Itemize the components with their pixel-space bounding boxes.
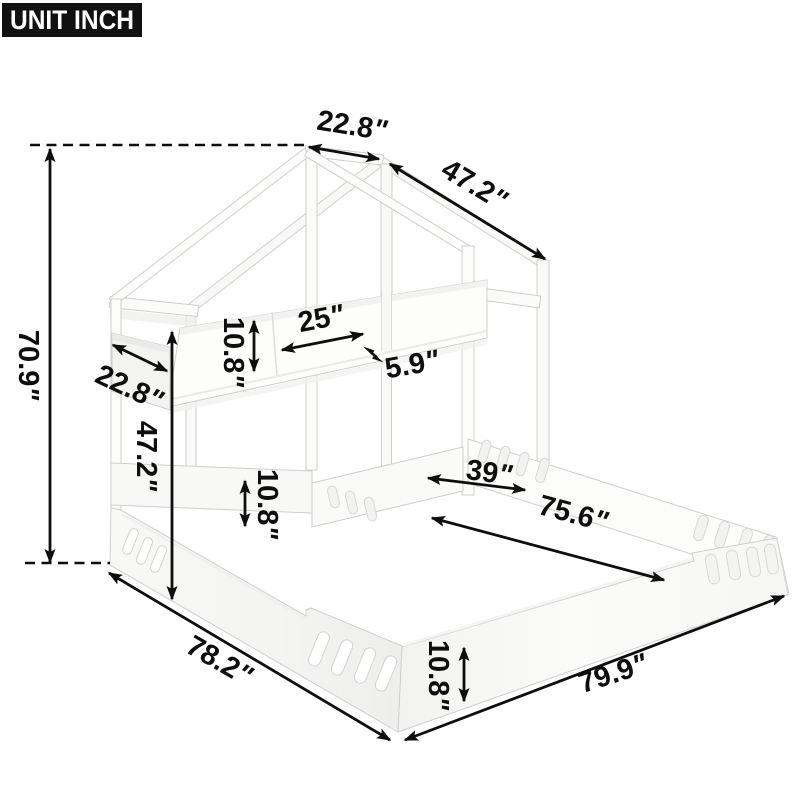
svg-text:10.8": 10.8" <box>251 469 283 540</box>
svg-text:70.9": 70.9" <box>12 330 44 401</box>
svg-text:39": 39" <box>464 454 515 492</box>
svg-text:47.2": 47.2" <box>130 421 162 492</box>
svg-text:10.8": 10.8" <box>217 317 249 388</box>
svg-text:UNIT INCH: UNIT INCH <box>10 5 134 35</box>
svg-text:10.8": 10.8" <box>422 640 454 711</box>
